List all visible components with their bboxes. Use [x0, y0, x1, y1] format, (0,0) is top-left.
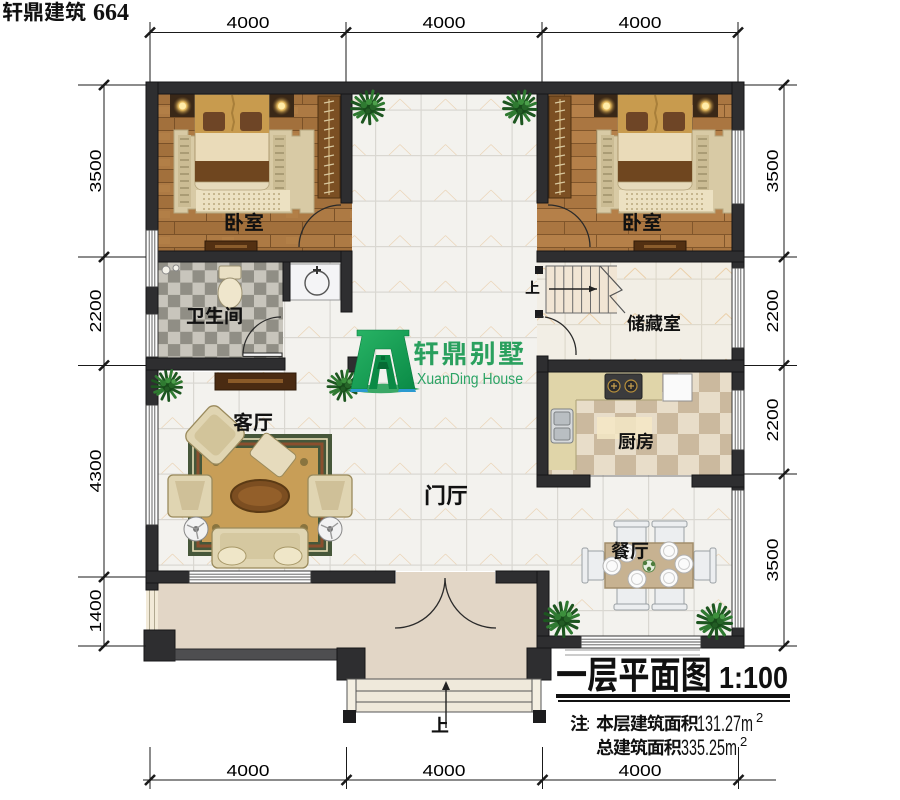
- svg-text:4000: 4000: [227, 15, 270, 32]
- svg-text:2: 2: [756, 710, 763, 725]
- svg-text:3500: 3500: [765, 149, 782, 192]
- svg-text:664: 664: [93, 0, 129, 26]
- svg-text:1:100: 1:100: [719, 660, 788, 695]
- svg-text:335.25m: 335.25m: [681, 735, 737, 760]
- svg-text:2200: 2200: [765, 398, 782, 441]
- svg-text:4000: 4000: [619, 763, 662, 780]
- svg-text:3500: 3500: [88, 149, 105, 192]
- svg-text:4000: 4000: [423, 763, 466, 780]
- svg-text::: :: [586, 716, 590, 733]
- svg-text:131.27m: 131.27m: [697, 711, 753, 736]
- svg-text:2: 2: [740, 734, 747, 749]
- svg-text:3500: 3500: [765, 538, 782, 581]
- svg-text:2200: 2200: [765, 289, 782, 332]
- svg-text:XuanDing House: XuanDing House: [417, 371, 523, 388]
- svg-text:4000: 4000: [227, 763, 270, 780]
- svg-text:1400: 1400: [88, 589, 105, 632]
- svg-text:4000: 4000: [619, 15, 662, 32]
- svg-text:4300: 4300: [88, 449, 105, 492]
- svg-text:2200: 2200: [88, 289, 105, 332]
- svg-text:4000: 4000: [423, 15, 466, 32]
